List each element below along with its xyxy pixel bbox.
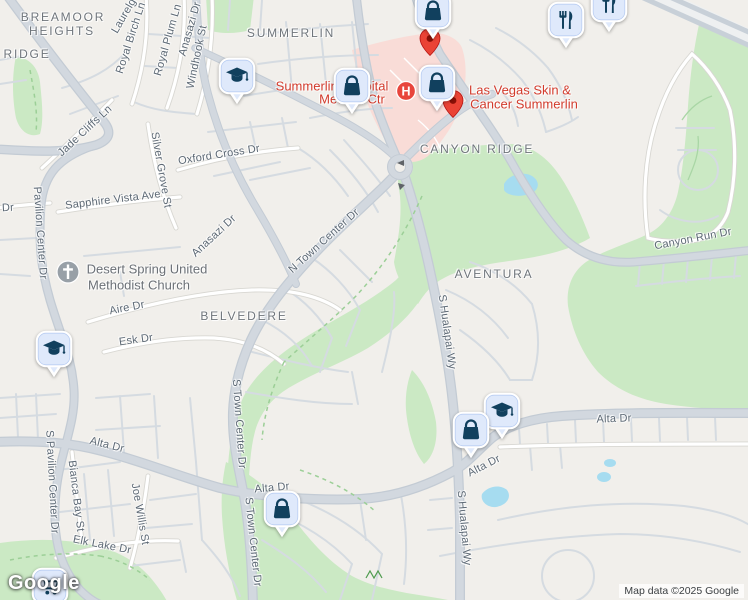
street-label: S Town Center Dr [242, 497, 263, 588]
street-label: Royal Plum Ln [152, 3, 184, 78]
map-canvas[interactable]: BREAMOORHEIGHTSRIDGESUMMERLINCANYON RIDG… [0, 0, 748, 600]
poi-label: Methodist Church [88, 278, 190, 293]
area-label: BREAMOOR [21, 10, 105, 24]
street-label: S Town Center Dr [230, 379, 248, 469]
area-label: SUMMERLIN [247, 26, 335, 40]
street-label: Canyon Run Dr [653, 226, 732, 253]
area-label: HEIGHTS [29, 24, 95, 38]
street-label: Bianca Bay St [66, 460, 87, 533]
street-label: Alta Dr [89, 435, 126, 455]
street-label: Alta Dr [596, 412, 631, 425]
area-label: AVENTURA [455, 267, 534, 281]
marker-graduation-cap[interactable] [34, 329, 74, 381]
marker-shopping-bag[interactable] [451, 410, 491, 462]
area-label: BELVEDERE [200, 309, 287, 323]
hospital-icon[interactable]: H [395, 80, 417, 113]
street-label: Joe Willis St [129, 482, 152, 546]
area-label: CANYON RIDGE [420, 142, 534, 156]
marker-restaurant[interactable] [546, 0, 586, 52]
poi-label: Desert Spring United [87, 262, 208, 277]
poi-label: Las Vegas Skin & [469, 83, 571, 98]
street-label: Elk Lake Dr [72, 533, 132, 556]
map-attribution: Map data ©2025 Google [619, 584, 744, 598]
street-label: Pavilion Center Dr [31, 186, 49, 279]
street-label: Dr [2, 202, 15, 215]
street-label: Jade Cliffs Ln [56, 103, 115, 159]
street-label: N Town Center Dr [286, 206, 361, 275]
marker-restaurant[interactable] [589, 0, 629, 36]
street-label: Sapphire Vista Ave [65, 188, 162, 212]
street-label: Esk Dr [118, 332, 154, 349]
marker-graduation-cap[interactable] [217, 56, 257, 108]
street-label: S Hualapai Wy [455, 490, 474, 566]
poi-label: Cancer Summerlin [470, 97, 578, 112]
google-logo[interactable]: Google [8, 572, 80, 595]
street-label: Oxford Cross Dr [177, 143, 260, 168]
marker-shopping-bag[interactable] [262, 489, 302, 541]
street-label: S Hualapai Wy [436, 294, 458, 370]
street-label: S Pavilion Center Dr [43, 430, 60, 534]
church-icon[interactable] [56, 260, 80, 289]
street-label: Anasazi Dr [190, 213, 239, 260]
marker-shopping-bag[interactable] [332, 66, 372, 118]
area-label: RIDGE [3, 47, 50, 61]
marker-shopping-bag[interactable] [417, 63, 457, 115]
street-label: Aire Dr [108, 299, 145, 318]
svg-text:H: H [401, 85, 410, 99]
marker-shopping-bag[interactable] [413, 0, 453, 43]
labels-layer: BREAMOORHEIGHTSRIDGESUMMERLINCANYON RIDG… [0, 0, 748, 600]
